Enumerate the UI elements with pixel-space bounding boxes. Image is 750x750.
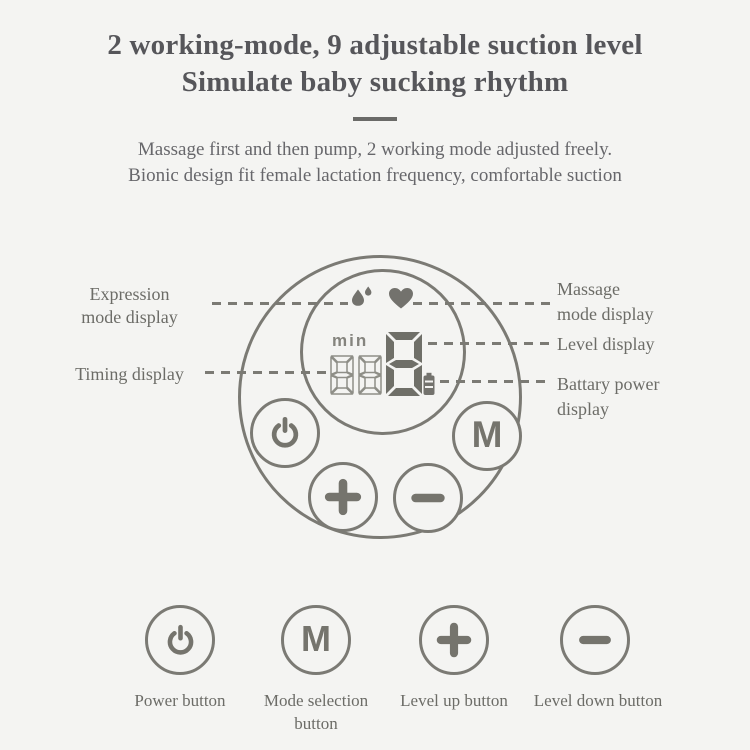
device-power-button — [250, 398, 320, 468]
callout-line-battery — [440, 380, 552, 383]
mode-letter: M — [472, 416, 503, 456]
subtitle-line-1: Massage first and then pump, 2 working m… — [0, 137, 750, 163]
legend-mode-button: M — [281, 605, 351, 675]
min-unit-label: min — [332, 331, 368, 351]
level-seven-segment-display — [385, 331, 423, 397]
device-mode-button: M — [452, 401, 522, 471]
mode-letter: M — [301, 621, 331, 660]
power-icon — [164, 624, 197, 657]
legend-label-level-down: Level down button — [513, 689, 683, 712]
minus-icon — [407, 477, 449, 519]
callout-line-level — [428, 342, 552, 345]
legend-level-up-button — [419, 605, 489, 675]
page-subtitle: Massage first and then pump, 2 working m… — [0, 137, 750, 189]
title-line-2: Simulate baby sucking rhythm — [0, 64, 750, 101]
display-panel — [300, 269, 466, 435]
title-divider — [353, 117, 397, 121]
power-icon — [268, 416, 302, 450]
minus-icon — [575, 620, 615, 660]
legend-level-down-button — [560, 605, 630, 675]
timer-digit-2 — [359, 356, 381, 394]
page-title: 2 working-mode, 9 adjustable suction lev… — [0, 27, 750, 101]
timer-digit-1 — [331, 356, 353, 394]
callout-level-display: Level display — [557, 333, 727, 356]
battery-icon — [422, 372, 436, 396]
device-level-up-button — [308, 462, 378, 532]
callout-battery-power-display: Battary power display — [557, 372, 727, 422]
title-line-1: 2 working-mode, 9 adjustable suction lev… — [0, 27, 750, 64]
callout-line-expression — [212, 302, 348, 305]
plus-icon — [434, 620, 474, 660]
callout-timing-display: Timing display — [52, 363, 207, 386]
device-level-down-button — [393, 463, 463, 533]
water-drops-icon — [351, 286, 373, 306]
heart-icon — [389, 288, 413, 309]
infographic-canvas: 2 working-mode, 9 adjustable suction lev… — [0, 0, 750, 750]
timer-seven-segment-display — [330, 355, 382, 395]
plus-icon — [322, 476, 364, 518]
callout-line-timing — [205, 371, 327, 374]
callout-line-massage — [413, 302, 553, 305]
legend-power-button — [145, 605, 215, 675]
subtitle-line-2: Bionic design fit female lactation frequ… — [0, 163, 750, 189]
callout-massage-mode-display: Massage mode display — [557, 277, 727, 327]
callout-expression-mode-display: Expression mode display — [52, 283, 207, 329]
